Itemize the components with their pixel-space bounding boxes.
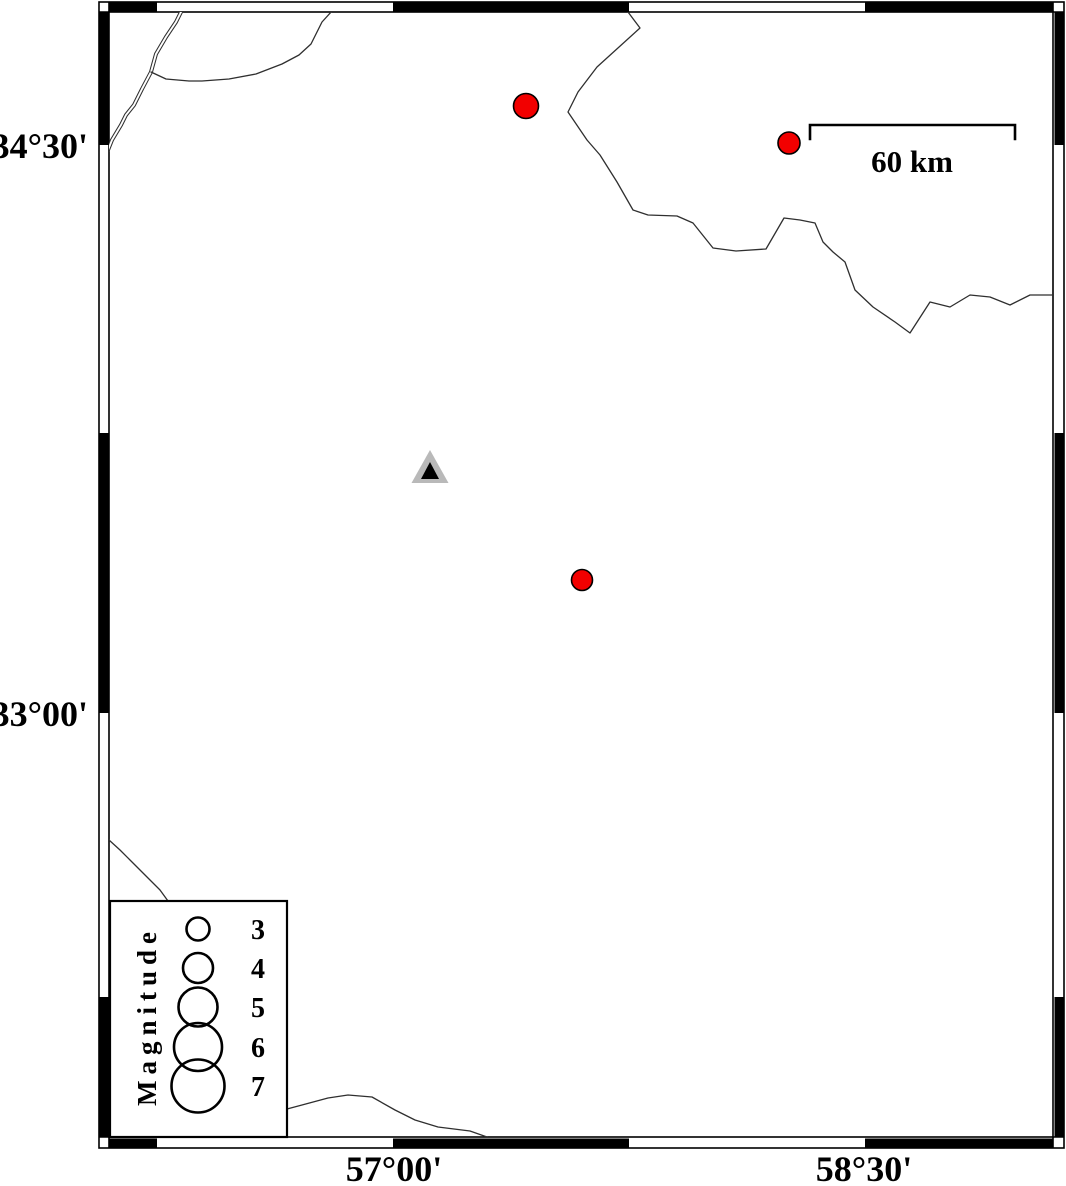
frame-segment-right: [1055, 433, 1064, 713]
map-figure: 60 km 57°00'58°30'34°30'33°00' Magnitude…: [0, 0, 1066, 1186]
legend-magnitude-value: 6: [251, 1033, 265, 1064]
scale-bar-label: 60 km: [871, 144, 953, 179]
frame-segment-bottom: [109, 1139, 157, 1148]
frame-segment-top: [109, 3, 157, 12]
legend-title: Magnitude: [132, 926, 162, 1106]
x-axis-annotation: 58°30': [816, 1149, 912, 1186]
frame-segment-left: [100, 12, 109, 145]
earthquake-epicenter: [572, 570, 593, 591]
magnitude-legend: Magnitude 34567: [110, 901, 287, 1137]
scale-bar-bracket: [810, 125, 1015, 139]
river-line-bottomleft: [109, 840, 168, 901]
earthquake-epicenter: [778, 132, 800, 154]
earthquake-epicenter: [514, 94, 539, 119]
earthquake-markers: [514, 94, 801, 591]
frame-segment-bottom: [865, 1139, 1053, 1148]
frame-segment-bottom: [393, 1139, 629, 1148]
frame-segment-top: [393, 3, 629, 12]
map-canvas: 60 km 57°00'58°30'34°30'33°00' Magnitude…: [0, 0, 1066, 1186]
y-axis-annotation: 33°00': [0, 694, 88, 734]
station-marker: [412, 450, 449, 483]
frame-segment-left: [100, 433, 109, 713]
country-border-line: [568, 12, 1053, 333]
legend-magnitude-value: 5: [251, 993, 265, 1024]
frame-segment-left: [100, 997, 109, 1137]
river-line-bottom: [287, 1095, 487, 1137]
frame-segment-top: [865, 3, 1053, 12]
frame-segment-right: [1055, 12, 1064, 145]
legend-magnitude-value: 7: [251, 1072, 265, 1103]
y-axis-annotation: 34°30': [0, 126, 88, 166]
frame-segment-right: [1055, 997, 1064, 1137]
x-axis-annotation: 57°00': [346, 1149, 442, 1186]
legend-magnitude-value: 4: [251, 954, 265, 985]
scale-bar: 60 km: [810, 125, 1015, 179]
legend-magnitude-value: 3: [251, 915, 265, 946]
